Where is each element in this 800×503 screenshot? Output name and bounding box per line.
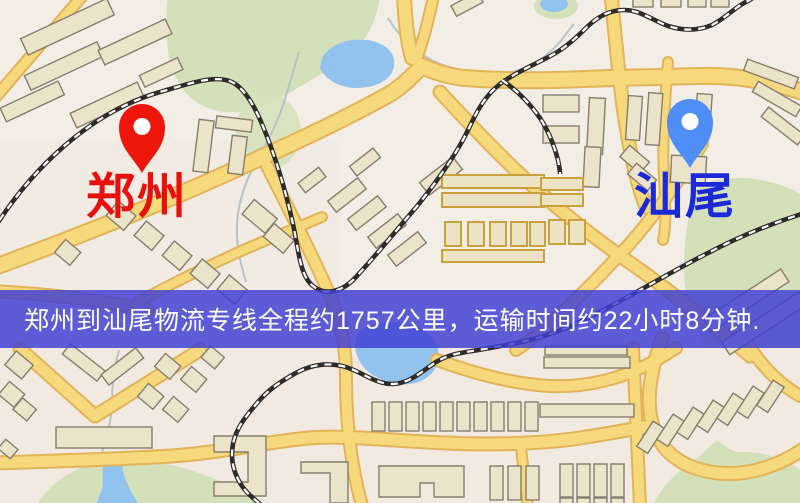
origin-city-label: 郑州 (86, 172, 188, 221)
destination-city-label: 汕尾 (634, 172, 736, 221)
logistics-route-map[interactable]: 郑州 汕尾 郑州到汕尾物流专线全程约1757公里，运输时间约22小时8分钟. (0, 0, 800, 503)
map-image[interactable] (0, 0, 800, 503)
route-info-text: 郑州到汕尾物流专线全程约1757公里，运输时间约22小时8分钟. (24, 301, 760, 337)
route-info-banner: 郑州到汕尾物流专线全程约1757公里，运输时间约22小时8分钟. (0, 290, 800, 348)
